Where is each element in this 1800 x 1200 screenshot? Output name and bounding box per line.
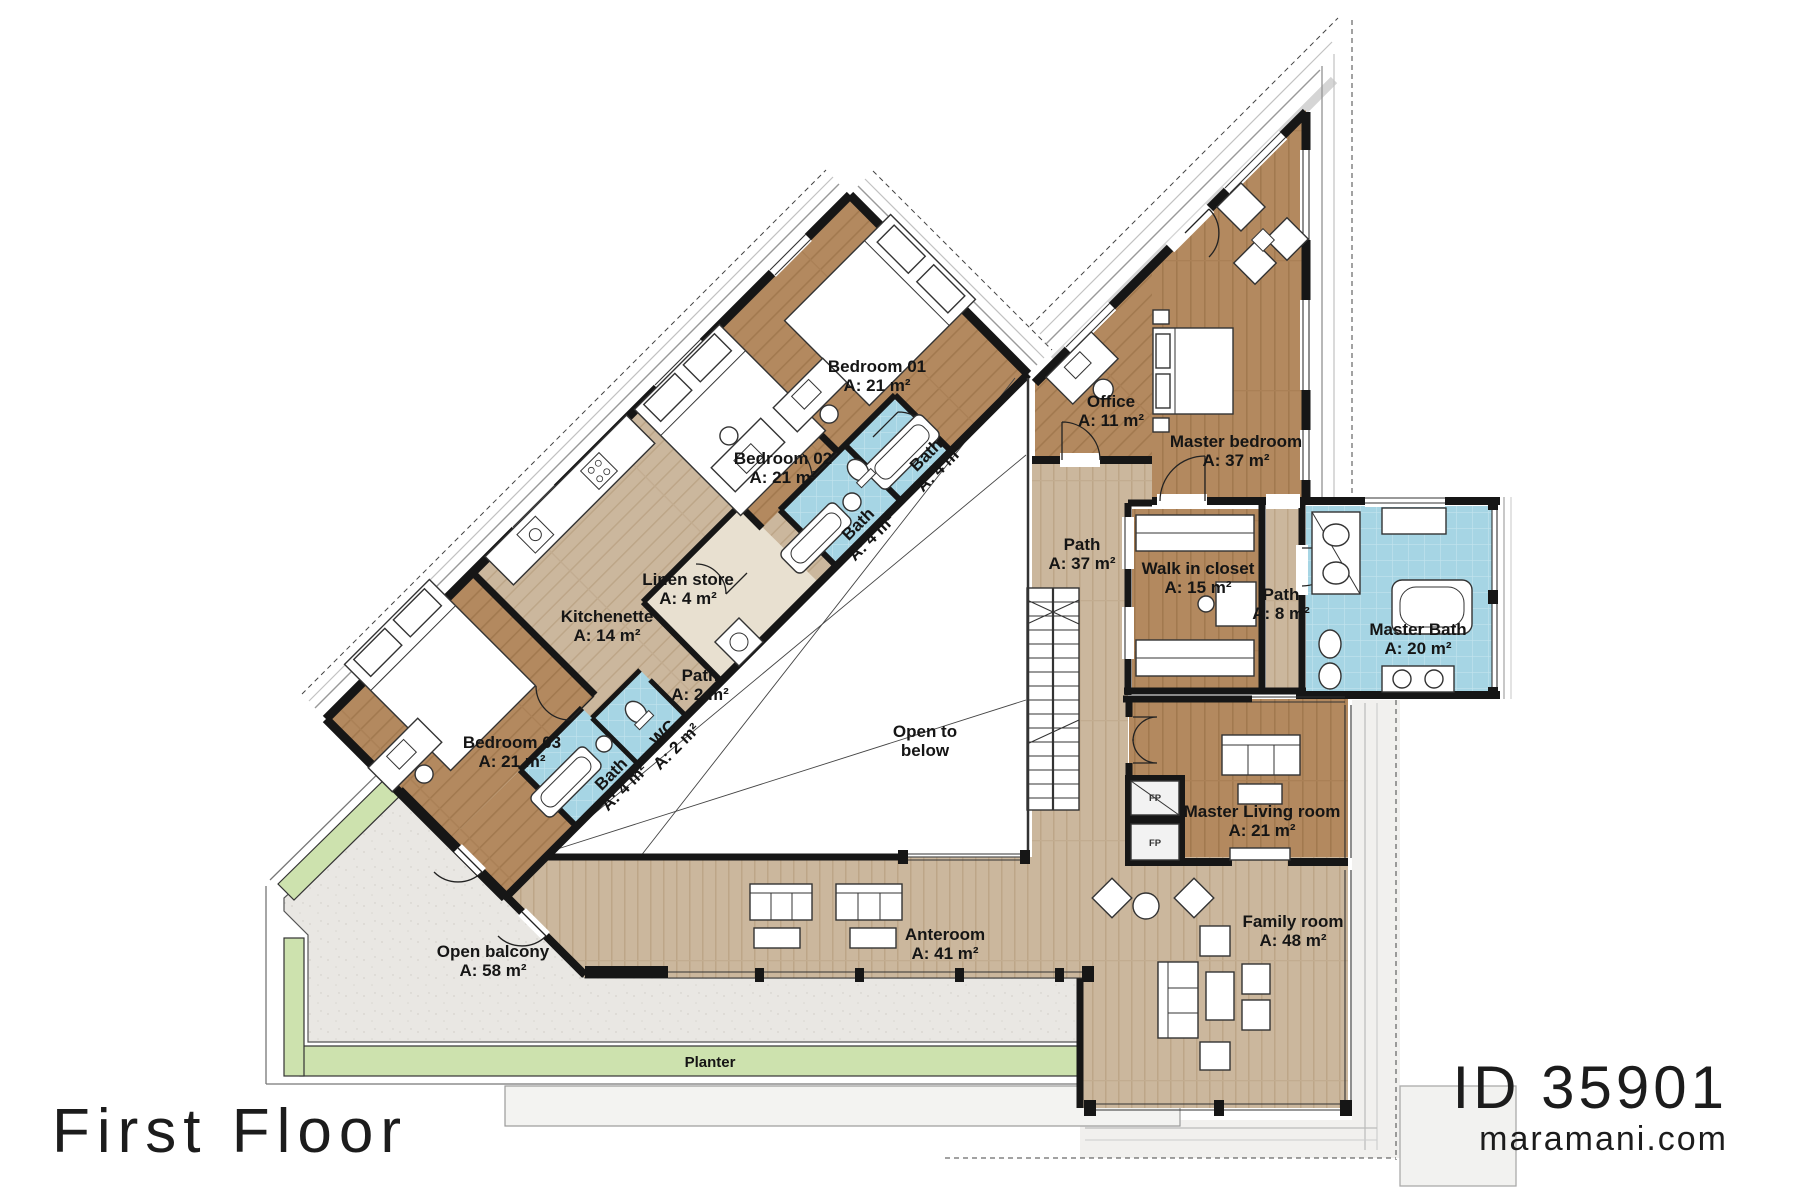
anteroom-sofa-1 [750, 884, 812, 920]
room-label-planter: Planter [685, 1054, 736, 1071]
family-armchair-3 [1242, 1000, 1270, 1030]
room-label-anteroom: AnteroomA: 41 m² [905, 925, 985, 963]
floor-plan-page: Bedroom 01A: 21 m²BathA: 4 m²BathA: 4 m²… [0, 0, 1800, 1200]
room-label-kitchenette: KitchenetteA: 14 m² [561, 607, 654, 645]
master-bath-sinks [1382, 666, 1454, 692]
room-label-fp-lower: FP [1149, 838, 1162, 849]
master-bath-window-shelf [1382, 508, 1446, 534]
website-watermark: maramani.com [1479, 1120, 1728, 1158]
anteroom-sofa-2 [836, 884, 902, 920]
floor-title: First Floor [52, 1097, 408, 1166]
anteroom-table-2 [850, 928, 896, 948]
master-bath-vanity [1312, 512, 1360, 594]
living-coffee-table [1238, 784, 1282, 804]
family-coffee-table [1206, 972, 1234, 1020]
room-label-fp-upper: FP [1149, 793, 1162, 804]
planter-strip-left [284, 938, 304, 1076]
staircase [1027, 588, 1079, 810]
family-armchair-1 [1200, 926, 1230, 956]
master-bed [1153, 310, 1233, 432]
floor-plan-drawing: Bedroom 01A: 21 m²BathA: 4 m²BathA: 4 m²… [0, 0, 1800, 1200]
plan-id: ID 35901 [1452, 1054, 1728, 1121]
family-sofa [1158, 962, 1198, 1038]
room-label-office: OfficeA: 11 m² [1078, 392, 1144, 430]
family-armchair-2 [1242, 964, 1270, 994]
room-label-open-to-below: Open tobelow [893, 722, 957, 760]
living-tv-console [1230, 848, 1290, 860]
fireplace-closets [1125, 775, 1185, 866]
family-armchair-4 [1200, 1042, 1230, 1070]
anteroom-table-1 [754, 928, 800, 948]
living-sofa [1222, 735, 1300, 775]
